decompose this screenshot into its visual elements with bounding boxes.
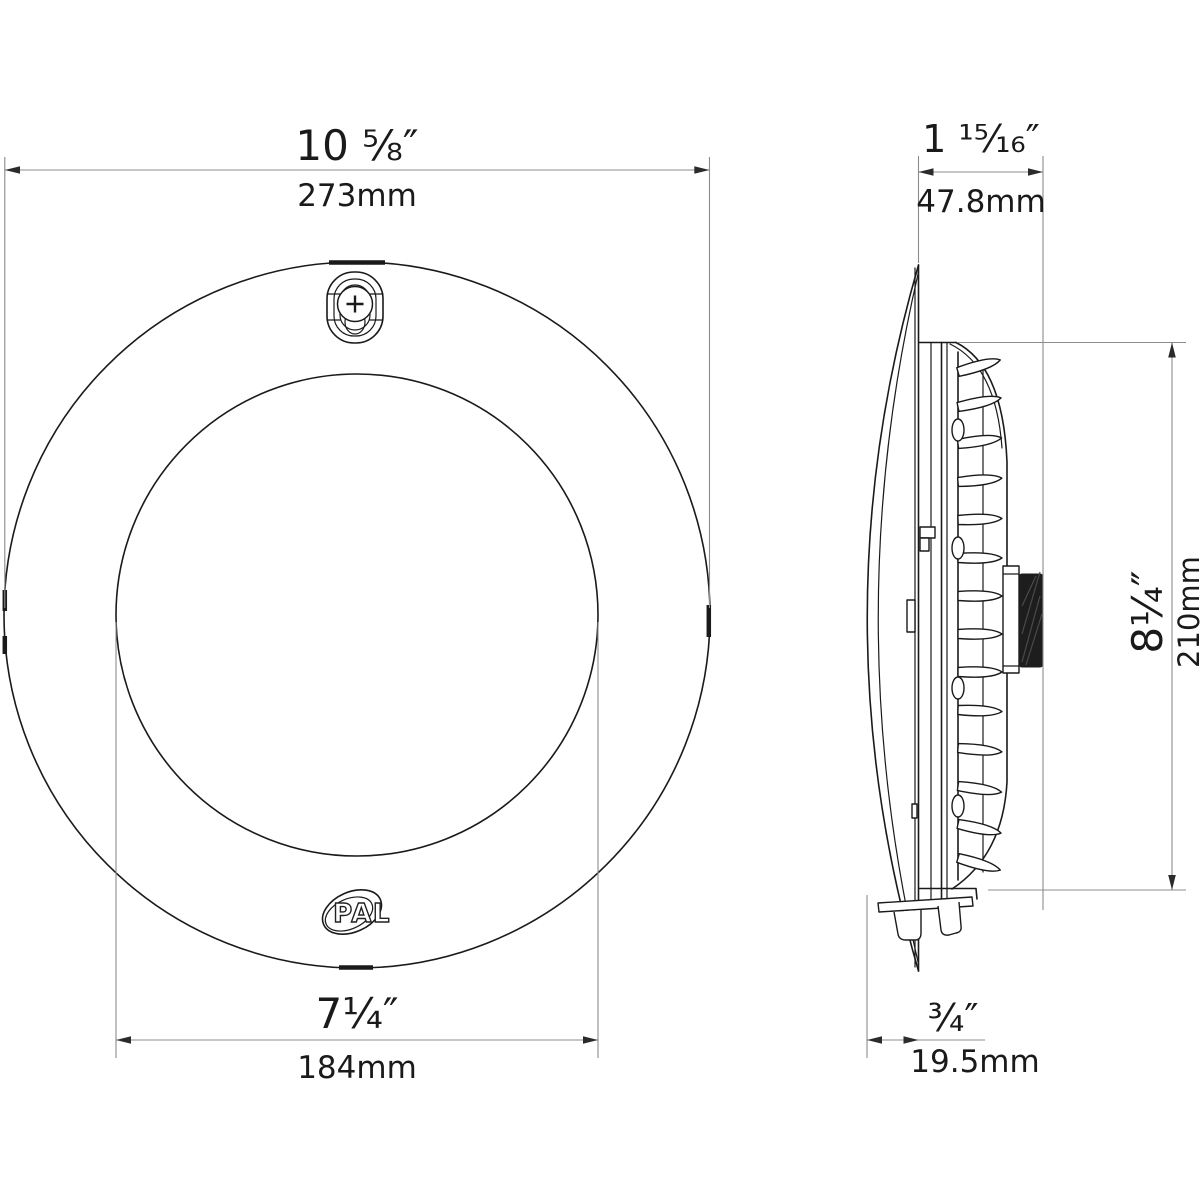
front-view: PAL [4,262,710,968]
lens-profile [867,265,918,971]
outer-rim-circle [4,262,710,968]
fin [958,629,1002,639]
arrowhead-bottom [1168,875,1176,890]
pal-logo-text: PAL [333,899,391,929]
outer-width-inches-label: 10 ⅝″ [295,121,418,170]
fin [957,433,1002,449]
fin [958,667,1002,677]
housing-body [919,343,1007,904]
outer-width-mm-label: 273mm [297,178,417,214]
lens-width-mm-label: 184mm [297,1050,417,1086]
fin [957,393,1002,412]
fin [957,355,1002,377]
fin [958,591,1002,601]
mounting-screw [327,272,383,343]
side-view [867,265,1043,971]
extension-lines [919,156,1044,910]
mounting-feet [878,897,973,940]
mounting-foot-left [894,910,921,940]
arrowhead-right [694,166,709,174]
rim-tab-side-lower [912,804,917,818]
body-height-inches-label: 8¼″ [1123,570,1172,653]
dim-body-height: 8¼″ 210mm [958,343,1200,891]
pal-logo: PAL [316,881,391,943]
arrowhead-left [867,1036,882,1044]
fin [958,743,1003,757]
pool-light-dimensional-drawing: PAL [0,0,1200,1200]
conduit-flange [1003,566,1019,673]
dim-lens-width: 7¼″ 184mm [116,622,598,1086]
conduit-port [1003,566,1043,673]
arrowhead-left [5,166,20,174]
mounting-foot-right [938,902,961,935]
arrowhead-top [1168,343,1176,358]
arrowhead-right [583,1036,598,1044]
fin [958,473,1003,487]
arrowhead-left [116,1036,131,1044]
lens-protrusion-inches-label: ¾″ [927,996,978,1040]
extension-lines [5,157,710,608]
housing-boss [952,537,964,559]
inner-lens-circle [116,374,598,856]
housing-boss [952,795,964,817]
fin [957,853,1002,875]
arrowhead-right [904,1036,919,1044]
body-height-mm-label: 210mm [1172,556,1200,668]
dim-outer-width: 10 ⅝″ 273mm [5,121,710,608]
retaining-clip [920,527,935,538]
rim-tab-side [907,600,915,632]
technical-drawing-page: PAL [0,0,1200,1200]
housing-boss [952,419,964,441]
fin [958,705,1002,717]
fin [958,513,1002,525]
depth-mm-label: 47.8mm [916,184,1045,220]
housing-boss [952,677,964,699]
arrowhead-right [1028,168,1043,176]
lens-width-inches-label: 7¼″ [315,989,398,1038]
lens-protrusion-mm-label: 19.5mm [910,1044,1039,1080]
fin [957,781,1002,797]
arrowhead-left [919,168,934,176]
retaining-clip-lower [920,538,929,551]
fin [958,553,1002,563]
depth-inches-label: 1 ¹⁵⁄₁₆″ [922,117,1040,161]
